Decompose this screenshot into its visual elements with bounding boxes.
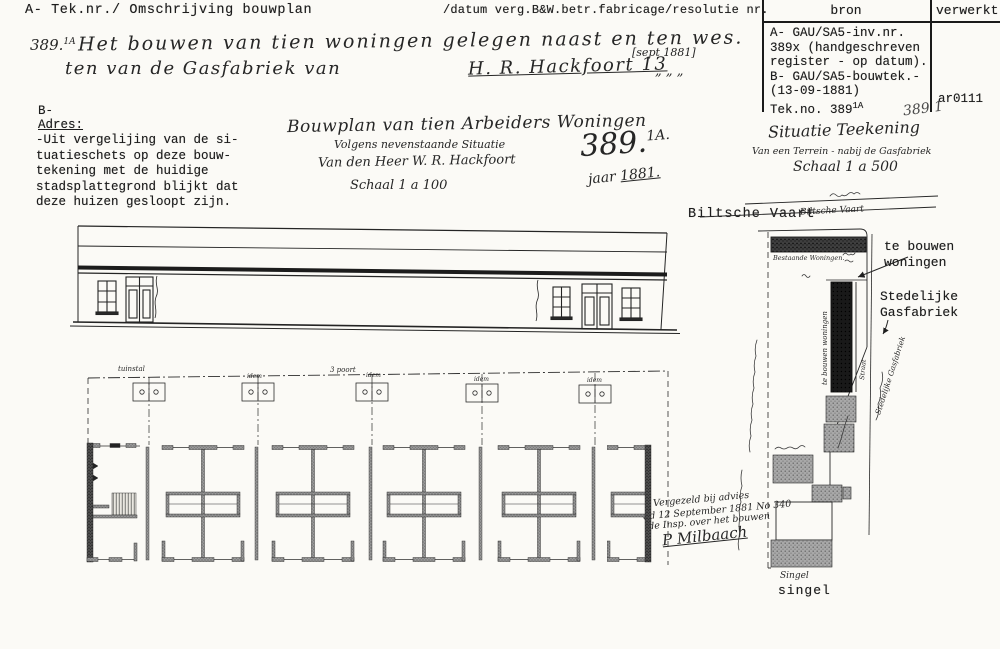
- title-year-label: jaar: [587, 169, 616, 188]
- plan-label-3: 3 poort: [330, 366, 356, 374]
- adres-title: Adres:: [38, 118, 83, 132]
- plan-unit: [498, 446, 580, 562]
- party-wall: [592, 447, 595, 560]
- elevation-window: [551, 287, 572, 320]
- adres-line: tekening met de huidige: [36, 164, 239, 180]
- elevation-window: [620, 288, 642, 321]
- situatie-line3: Schaal 1 a 500: [793, 159, 898, 175]
- verwerkt-value: ar0111: [938, 92, 983, 106]
- canal-line: [700, 207, 936, 217]
- privy-outbuilding: [242, 383, 274, 401]
- new-houses-hand-vertical: te bouwen woningen: [821, 311, 829, 385]
- title-number-text: 389.: [579, 125, 648, 165]
- registration-line2: ten van de Gasfabriek van: [65, 58, 341, 79]
- tekno-text: Tek.no. 389: [770, 103, 853, 117]
- title-line3: Van den Heer W. R. Hackfoort: [318, 152, 516, 170]
- table-border-middle: [930, 0, 932, 112]
- situation-map-drawing: Bestaande Woningen. te bouwen woningen S…: [680, 190, 1000, 602]
- existing-houses-hand-label: Bestaande Woningen.: [772, 254, 844, 262]
- adres-paragraph: -Uit vergelijing van de si- tuatieschets…: [36, 133, 239, 211]
- floor-plan-drawing: tuinstal idem 3 poort idem idem idem: [82, 355, 682, 585]
- street-hand-vertical: Straat: [858, 359, 868, 381]
- table-col-verwerkt: verwerkt: [936, 3, 998, 18]
- bron-line: B- GAU/SA5-bouwtek.-: [770, 70, 928, 85]
- plan-label-6: idem: [587, 377, 602, 384]
- adres-line: stadsplattegrond blijkt dat: [36, 180, 239, 196]
- party-wall: [479, 447, 482, 560]
- title-number: 389.1A.: [579, 123, 671, 164]
- adres-line: -Uit vergelijing van de si-: [36, 133, 239, 149]
- party-wall: [369, 447, 372, 560]
- title-year-value: 1881.: [619, 164, 661, 184]
- header-left-label: A- Tek.nr./ Omschrijving bouwplan: [25, 3, 312, 18]
- elevation-door: [126, 277, 153, 322]
- archival-scan-sheet: A- Tek.nr./ Omschrijving bouwplan /datum…: [0, 0, 1000, 649]
- plan-unit-end: [87, 443, 140, 562]
- party-wall: [255, 447, 258, 560]
- adres-b-label: B-: [38, 104, 53, 118]
- adres-line: deze huizen gesloopt zijn.: [36, 195, 239, 211]
- plan-label-4: idem: [366, 372, 381, 379]
- singel-hand-label: Singel: [780, 571, 809, 581]
- elevation-drawing: [68, 218, 683, 340]
- privy-outbuilding: [466, 384, 498, 402]
- plan-unit: [162, 446, 244, 562]
- bron-line: 389x (handgeschreven: [770, 41, 928, 56]
- bron-line: register - op datum).: [770, 55, 928, 70]
- plan-end-wall: [645, 445, 651, 562]
- plan-unit: [383, 446, 465, 562]
- situatie-line1: Situatie Teekening: [768, 117, 921, 141]
- table-header-rule: [762, 21, 1000, 23]
- registration-number-sup: 1A: [63, 37, 75, 47]
- gasworks-arrow: [883, 320, 888, 334]
- elevation-door: [582, 284, 612, 329]
- plan-label-5: idem: [474, 376, 489, 383]
- header-center-label: /datum verg.B&W.betr.fabricage/resolutie…: [443, 3, 769, 17]
- privy-outbuilding: [133, 383, 165, 401]
- pencil-number-note: 389 1: [902, 99, 944, 120]
- registration-ditto-marks: „ „ „: [655, 64, 683, 79]
- registration-date-bracket: [sept 1881]: [632, 46, 696, 59]
- table-col-bron: bron: [762, 3, 930, 18]
- title-year: jaar 1881.: [587, 164, 661, 187]
- tekno-sup: 1A: [853, 101, 864, 111]
- elevation-window: [96, 281, 118, 315]
- plan-label-2: idem: [247, 373, 262, 380]
- plan-unit: [272, 446, 354, 562]
- registration-number: 389.1A: [30, 36, 76, 54]
- bron-line: A- GAU/SA5-inv.nr.: [770, 26, 928, 41]
- situatie-line2: Van een Terrein - nabij de Gasfabriek: [752, 146, 931, 157]
- gasworks-hand-vertical: Stedelijke Gasfabriek: [873, 335, 907, 416]
- privy-outbuilding: [356, 383, 388, 401]
- title-line4: Schaal 1 a 100: [350, 178, 447, 193]
- adres-line: tuatieschets op deze bouw-: [36, 149, 239, 165]
- privy-outbuilding: [579, 385, 611, 403]
- bron-line: (13-09-1881): [770, 84, 928, 99]
- party-wall: [146, 447, 149, 560]
- new-houses-arrow: [858, 257, 908, 277]
- canal-line: [745, 196, 938, 204]
- title-line2: Volgens nevenstaande Situatie: [334, 138, 505, 151]
- registration-number-text: 389.: [30, 36, 63, 54]
- plan-label-1: tuinstal: [118, 365, 145, 373]
- title-number-sup: 1A.: [646, 127, 671, 145]
